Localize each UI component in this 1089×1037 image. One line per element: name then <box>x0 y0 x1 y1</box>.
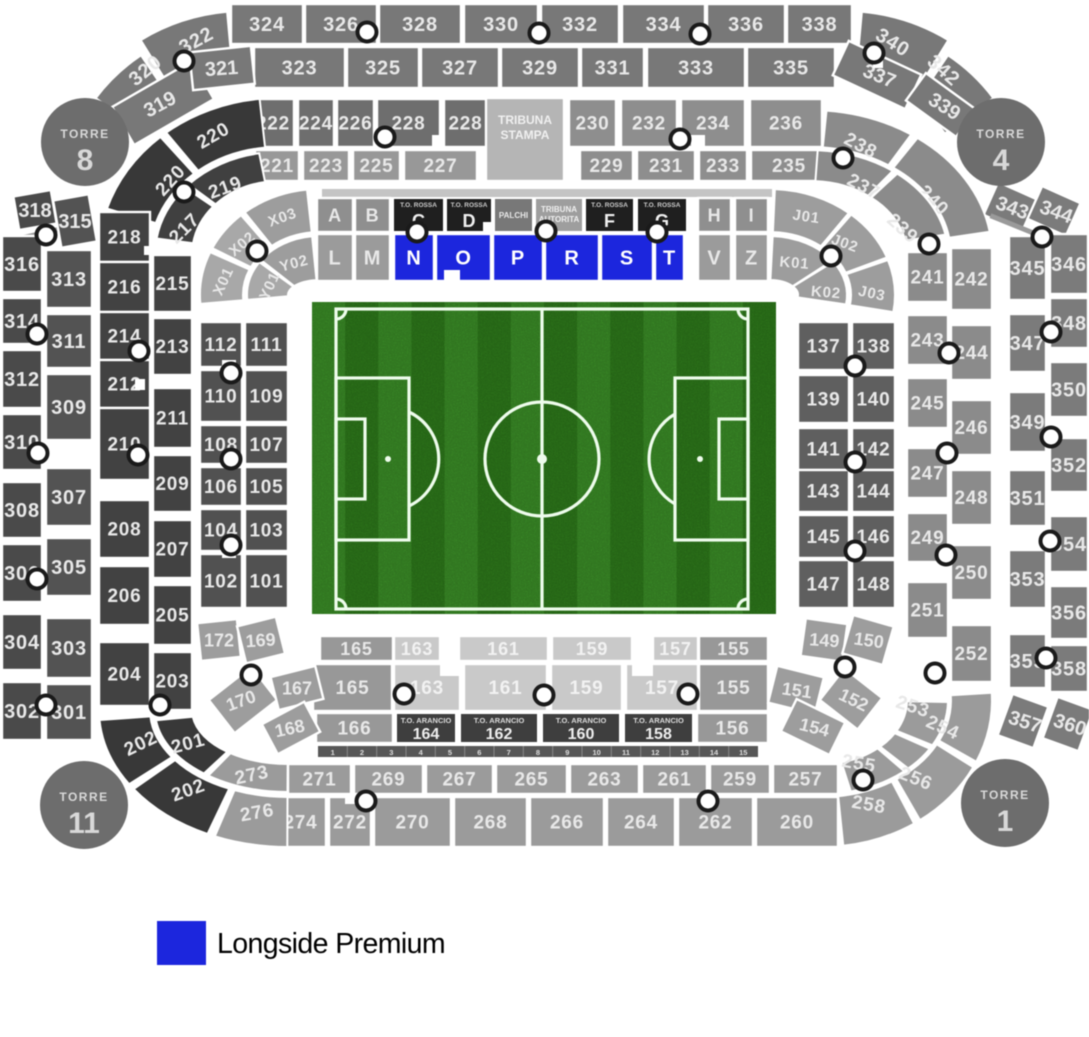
svg-text:11: 11 <box>622 748 630 757</box>
svg-text:257: 257 <box>788 770 822 791</box>
svg-text:351: 351 <box>1010 488 1046 510</box>
svg-text:225: 225 <box>359 156 393 177</box>
svg-text:110: 110 <box>204 387 237 408</box>
svg-text:321: 321 <box>204 57 239 81</box>
svg-text:231: 231 <box>649 156 683 177</box>
svg-text:138: 138 <box>856 337 890 358</box>
svg-text:307: 307 <box>51 487 87 509</box>
svg-text:336: 336 <box>728 14 764 36</box>
svg-text:161: 161 <box>487 639 519 659</box>
svg-text:331: 331 <box>595 58 631 80</box>
svg-text:139: 139 <box>806 390 840 411</box>
svg-text:F: F <box>604 211 615 231</box>
svg-text:221: 221 <box>260 156 294 177</box>
svg-text:TORRE: TORRE <box>59 790 108 804</box>
svg-text:245: 245 <box>910 394 944 415</box>
svg-text:303: 303 <box>51 638 87 660</box>
svg-text:9: 9 <box>565 748 569 757</box>
svg-text:172: 172 <box>204 630 234 650</box>
svg-text:332: 332 <box>562 14 598 36</box>
svg-text:160: 160 <box>568 726 595 743</box>
svg-text:T.O. ARANCIO: T.O. ARANCIO <box>633 716 684 725</box>
svg-text:145: 145 <box>806 527 840 548</box>
svg-text:230: 230 <box>575 114 609 135</box>
svg-text:155: 155 <box>716 678 750 699</box>
svg-text:226: 226 <box>338 114 372 135</box>
svg-text:252: 252 <box>954 644 988 665</box>
svg-text:316: 316 <box>4 254 40 276</box>
svg-text:167: 167 <box>282 678 312 698</box>
svg-text:111: 111 <box>250 335 282 356</box>
svg-text:12: 12 <box>651 748 659 757</box>
svg-text:147: 147 <box>806 575 840 596</box>
svg-text:234: 234 <box>696 114 730 135</box>
svg-text:305: 305 <box>51 557 87 579</box>
svg-text:141: 141 <box>806 440 840 461</box>
svg-text:165: 165 <box>340 639 372 659</box>
svg-text:247: 247 <box>910 464 944 485</box>
svg-text:262: 262 <box>698 813 732 834</box>
svg-text:T.O. ARANCIO: T.O. ARANCIO <box>556 716 607 725</box>
svg-text:334: 334 <box>646 14 682 36</box>
svg-text:6: 6 <box>477 748 481 757</box>
svg-text:D: D <box>463 211 476 231</box>
svg-text:O: O <box>455 248 471 270</box>
svg-text:109: 109 <box>249 387 283 408</box>
svg-text:325: 325 <box>365 58 401 80</box>
svg-text:328: 328 <box>402 14 438 36</box>
svg-text:213: 213 <box>155 337 189 358</box>
svg-text:352: 352 <box>1051 455 1087 477</box>
svg-text:Z: Z <box>745 248 758 270</box>
svg-text:A: A <box>328 205 342 225</box>
svg-text:209: 209 <box>155 474 189 495</box>
svg-text:304: 304 <box>4 632 40 654</box>
svg-text:215: 215 <box>155 274 189 295</box>
svg-text:102: 102 <box>204 572 238 593</box>
svg-text:T.O. ROSSA: T.O. ROSSA <box>591 202 628 209</box>
svg-text:261: 261 <box>657 770 691 791</box>
svg-text:308: 308 <box>4 500 40 522</box>
svg-text:PALCHI: PALCHI <box>499 211 528 220</box>
svg-text:143: 143 <box>806 482 840 503</box>
svg-text:15: 15 <box>739 748 747 757</box>
svg-text:K01: K01 <box>779 253 810 273</box>
svg-text:161: 161 <box>488 678 522 699</box>
svg-text:M: M <box>364 248 381 270</box>
svg-text:265: 265 <box>514 770 548 791</box>
svg-text:267: 267 <box>442 770 476 791</box>
svg-text:T: T <box>663 248 676 270</box>
svg-text:TRIBUNA: TRIBUNA <box>498 113 552 127</box>
svg-text:271: 271 <box>302 770 336 791</box>
svg-text:259: 259 <box>723 770 757 791</box>
svg-text:313: 313 <box>51 269 87 291</box>
svg-text:H: H <box>708 205 722 225</box>
svg-text:203: 203 <box>155 672 189 693</box>
svg-text:V: V <box>707 248 721 270</box>
svg-text:8: 8 <box>77 144 94 177</box>
svg-text:TORRE: TORRE <box>976 127 1025 141</box>
svg-text:260: 260 <box>780 813 814 834</box>
svg-text:148: 148 <box>856 575 890 596</box>
svg-text:353: 353 <box>1010 569 1046 591</box>
svg-text:P: P <box>511 248 525 270</box>
svg-text:157: 157 <box>659 639 691 659</box>
svg-text:T.O. ARANCIO: T.O. ARANCIO <box>474 716 525 725</box>
svg-text:14: 14 <box>710 748 719 757</box>
svg-text:268: 268 <box>473 813 507 834</box>
svg-text:TRIBUNA: TRIBUNA <box>541 205 577 214</box>
svg-text:140: 140 <box>856 390 890 411</box>
svg-text:158: 158 <box>645 726 672 743</box>
svg-text:250: 250 <box>954 563 988 584</box>
svg-text:8: 8 <box>536 748 540 757</box>
svg-text:1: 1 <box>997 805 1014 838</box>
svg-text:10: 10 <box>593 748 601 757</box>
svg-text:228: 228 <box>391 114 425 135</box>
svg-text:229: 229 <box>589 156 623 177</box>
svg-text:13: 13 <box>681 748 689 757</box>
svg-text:323: 323 <box>282 58 318 80</box>
svg-text:335: 335 <box>773 58 809 80</box>
svg-text:246: 246 <box>954 418 988 439</box>
svg-text:318: 318 <box>18 200 51 222</box>
svg-text:157: 157 <box>645 678 679 699</box>
svg-text:3: 3 <box>389 748 393 757</box>
svg-text:329: 329 <box>522 58 558 80</box>
svg-text:169: 169 <box>245 629 276 651</box>
svg-text:327: 327 <box>442 58 478 80</box>
svg-text:T.O. ROSSA: T.O. ROSSA <box>644 202 681 209</box>
svg-text:T.O. ROSSA: T.O. ROSSA <box>451 202 488 209</box>
svg-text:235: 235 <box>772 156 806 177</box>
svg-text:208: 208 <box>107 520 141 541</box>
svg-text:162: 162 <box>486 726 513 743</box>
svg-text:311: 311 <box>52 331 87 353</box>
svg-text:R: R <box>564 248 579 270</box>
svg-text:K02: K02 <box>810 283 841 303</box>
svg-text:263: 263 <box>587 770 621 791</box>
svg-text:106: 106 <box>204 477 238 498</box>
svg-text:2: 2 <box>360 748 364 757</box>
svg-text:236: 236 <box>769 114 803 135</box>
svg-text:349: 349 <box>1010 412 1046 434</box>
svg-text:144: 144 <box>856 482 890 503</box>
svg-text:STAMPA: STAMPA <box>501 128 550 142</box>
svg-text:242: 242 <box>954 270 988 291</box>
svg-text:223: 223 <box>309 156 343 177</box>
svg-text:Longside Premium: Longside Premium <box>217 928 445 960</box>
svg-text:211: 211 <box>156 409 189 430</box>
svg-text:205: 205 <box>155 606 189 627</box>
svg-text:105: 105 <box>249 477 283 498</box>
svg-text:269: 269 <box>371 770 405 791</box>
svg-text:218: 218 <box>107 228 141 249</box>
svg-text:309: 309 <box>51 397 87 419</box>
svg-text:324: 324 <box>249 14 285 36</box>
svg-text:248: 248 <box>954 488 988 509</box>
svg-text:4: 4 <box>993 144 1010 177</box>
svg-text:206: 206 <box>107 586 141 607</box>
svg-text:S: S <box>620 248 634 270</box>
svg-text:T.O. ROSSA: T.O. ROSSA <box>400 202 437 209</box>
svg-text:312: 312 <box>4 369 40 391</box>
svg-text:346: 346 <box>1051 254 1087 276</box>
svg-text:137: 137 <box>806 337 840 358</box>
svg-text:TORRE: TORRE <box>60 127 109 141</box>
svg-text:11: 11 <box>68 807 100 840</box>
svg-text:207: 207 <box>155 540 189 561</box>
svg-text:5: 5 <box>448 748 452 757</box>
svg-text:227: 227 <box>423 156 457 177</box>
svg-text:159: 159 <box>569 678 603 699</box>
svg-text:241: 241 <box>910 268 944 289</box>
svg-text:B: B <box>366 205 380 225</box>
svg-text:338: 338 <box>802 14 838 36</box>
svg-text:164: 164 <box>413 726 440 743</box>
svg-text:166: 166 <box>337 719 371 740</box>
svg-text:N: N <box>406 248 421 270</box>
svg-text:112: 112 <box>204 335 237 356</box>
svg-text:315: 315 <box>58 211 91 233</box>
svg-text:T.O. ARANCIO: T.O. ARANCIO <box>401 716 452 725</box>
svg-text:266: 266 <box>550 813 584 834</box>
svg-text:204: 204 <box>107 665 141 686</box>
svg-text:270: 270 <box>395 813 429 834</box>
svg-text:163: 163 <box>401 639 433 659</box>
svg-text:150: 150 <box>853 628 886 652</box>
svg-text:347: 347 <box>1010 333 1046 355</box>
svg-text:251: 251 <box>910 601 944 622</box>
svg-text:155: 155 <box>717 639 749 659</box>
svg-text:216: 216 <box>107 278 141 299</box>
svg-text:330: 330 <box>483 14 519 36</box>
svg-text:228: 228 <box>448 114 482 135</box>
svg-text:333: 333 <box>678 58 714 80</box>
svg-text:103: 103 <box>249 521 283 542</box>
svg-text:224: 224 <box>299 114 333 135</box>
svg-text:232: 232 <box>632 114 666 135</box>
svg-text:233: 233 <box>706 156 740 177</box>
svg-text:101: 101 <box>249 572 283 593</box>
svg-text:350: 350 <box>1051 380 1087 402</box>
svg-text:264: 264 <box>624 813 658 834</box>
svg-text:7: 7 <box>507 748 511 757</box>
svg-text:356: 356 <box>1051 603 1087 625</box>
svg-text:107: 107 <box>249 435 283 456</box>
svg-text:274: 274 <box>283 813 317 834</box>
svg-text:272: 272 <box>333 813 367 834</box>
svg-text:156: 156 <box>715 719 749 740</box>
svg-text:149: 149 <box>809 629 840 651</box>
svg-text:I: I <box>749 205 755 225</box>
svg-text:326: 326 <box>323 14 359 36</box>
svg-text:345: 345 <box>1010 258 1046 280</box>
svg-text:TORRE: TORRE <box>980 788 1029 802</box>
svg-text:L: L <box>328 248 341 270</box>
svg-text:1: 1 <box>331 748 335 757</box>
svg-text:159: 159 <box>576 639 608 659</box>
svg-text:165: 165 <box>335 678 369 699</box>
